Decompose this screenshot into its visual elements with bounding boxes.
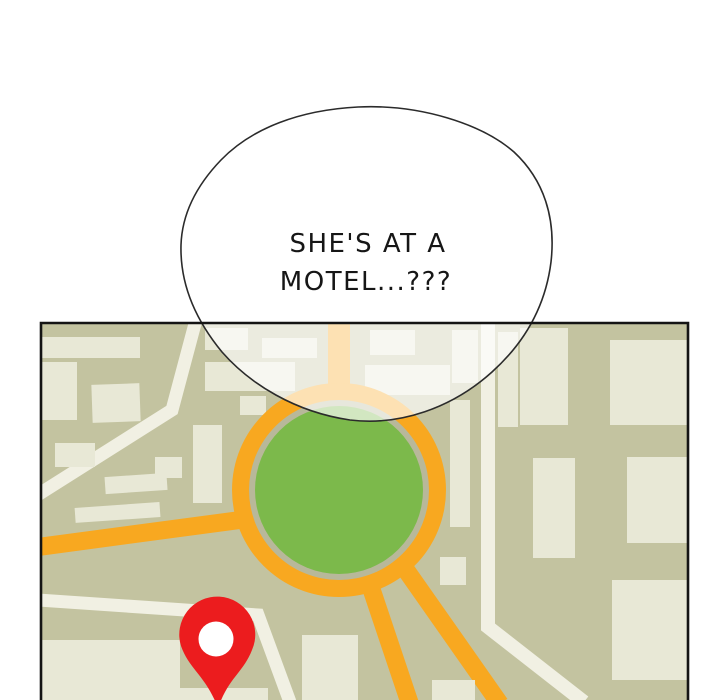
speech-bubble-line2: MOTEL...??? <box>280 267 452 297</box>
building <box>302 635 358 700</box>
building <box>610 340 688 425</box>
building <box>91 383 140 423</box>
building <box>55 443 95 467</box>
panel-art: SHE'S AT A MOTEL...??? <box>0 0 720 700</box>
building <box>240 396 266 415</box>
building <box>520 328 568 425</box>
pin-hole <box>199 622 234 657</box>
building <box>40 362 77 420</box>
building <box>40 337 140 358</box>
building <box>432 680 475 700</box>
building <box>533 458 575 558</box>
building <box>450 400 470 527</box>
building <box>193 425 222 503</box>
comic-panel: SHE'S AT A MOTEL...??? <box>0 0 720 700</box>
building <box>627 457 688 543</box>
roundabout-green-island <box>255 406 423 574</box>
building <box>440 557 466 585</box>
speech-bubble-line1: SHE'S AT A <box>289 229 446 259</box>
building <box>612 580 688 680</box>
